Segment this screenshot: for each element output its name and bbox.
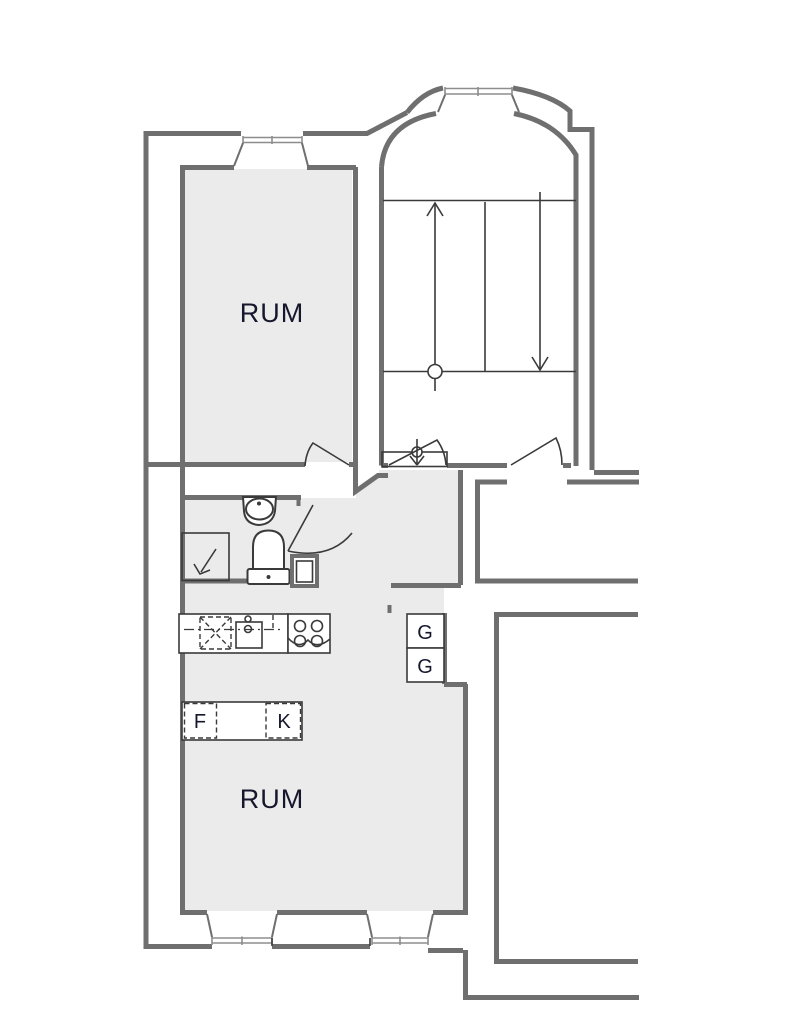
stove xyxy=(288,614,330,653)
pipe-shaft xyxy=(292,556,317,586)
stairwell-bay-outer-right xyxy=(513,88,592,470)
toilet xyxy=(248,531,290,585)
upper-room-label: RUM xyxy=(240,298,305,328)
fridge-label: K xyxy=(277,711,291,733)
window-lower-room-left xyxy=(207,914,370,946)
neighbor-room-walls xyxy=(497,615,639,962)
floor-plan-canvas: F K G G RUM RUM xyxy=(0,0,801,1029)
window-stairwell xyxy=(438,87,519,112)
neighbor-hall-wall xyxy=(475,482,638,581)
stair-landing-lines xyxy=(383,201,576,372)
outer-wall-north-right xyxy=(303,113,407,134)
neighbor-door-swing xyxy=(511,438,562,465)
stairwell-bay-inner-right xyxy=(514,114,576,467)
wardrobe-2-label: G xyxy=(417,656,433,678)
lower-room-label: RUM xyxy=(240,784,305,814)
stairwell xyxy=(382,192,576,467)
floor-areas xyxy=(180,169,467,911)
stair-down-arrow xyxy=(532,192,548,370)
fridge-freezer-unit: F K xyxy=(182,702,302,740)
freezer-label: F xyxy=(194,711,206,733)
floor-plan-svg: F K G G RUM RUM xyxy=(0,0,801,1029)
wardrobe-1-label: G xyxy=(417,622,433,644)
window-upper-room xyxy=(234,136,308,166)
outer-wall-southeast xyxy=(428,950,639,998)
stair-up-arrow xyxy=(427,203,443,391)
kitchen-counter xyxy=(179,614,288,653)
entrance-door-symbol xyxy=(382,439,447,467)
wardrobes: G G xyxy=(407,614,444,682)
window-lower-room-right xyxy=(367,914,433,945)
main-living-floor xyxy=(180,470,467,911)
sink xyxy=(243,497,276,525)
stairwell-bay-outer-left xyxy=(407,88,443,113)
